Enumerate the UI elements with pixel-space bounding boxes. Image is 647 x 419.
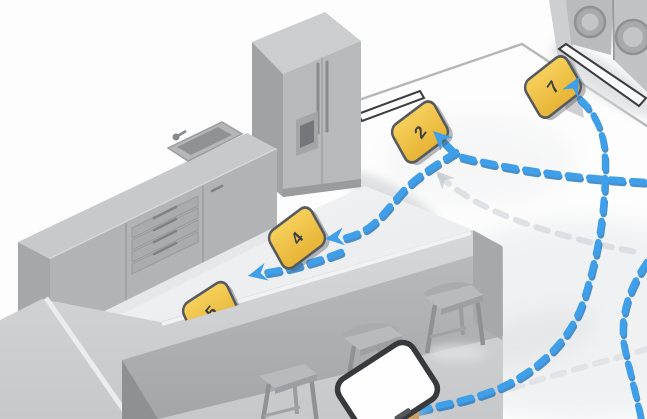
scene-3d-kitchen: 5 7 2 4 [0,0,647,419]
island-end-face [473,230,502,340]
washer-door-glass [623,27,643,47]
washer-door-glass [582,14,599,31]
washer-divider [613,0,614,60]
